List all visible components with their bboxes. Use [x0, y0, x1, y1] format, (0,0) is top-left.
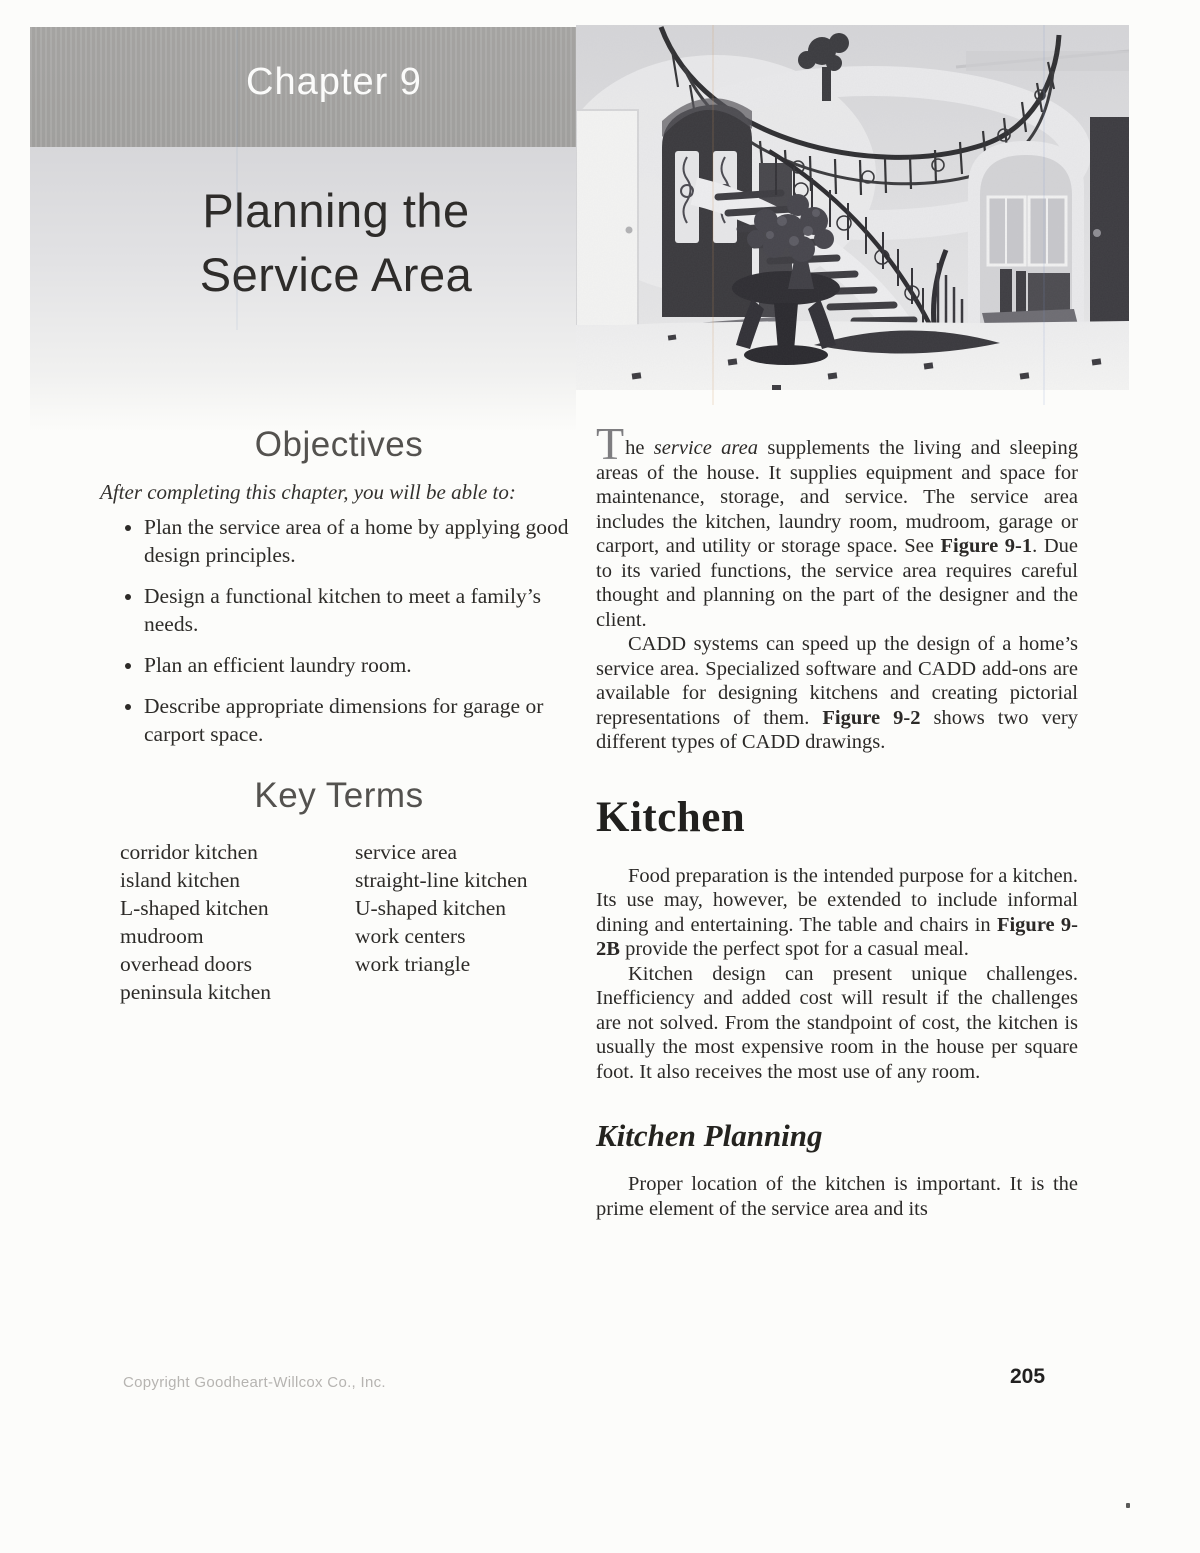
key-terms-column-1: corridor kitchen island kitchen L-shaped…	[120, 838, 355, 1006]
textbook-page: Chapter 9 Planning the Service Area	[0, 0, 1200, 1553]
chapter-title-line1: Planning the	[202, 184, 469, 237]
kitchen-p1-text: provide the perfect spot for a casual me…	[620, 938, 969, 960]
objective-item: Design a functional kitchen to meet a fa…	[144, 582, 578, 638]
objectives-heading: Objectives	[100, 425, 578, 465]
objectives-intro: After completing this chapter, you will …	[100, 479, 578, 505]
key-term: service area	[355, 838, 528, 866]
key-term: U-shaped kitchen	[355, 894, 528, 922]
chapter-title: Planning the Service Area	[30, 179, 576, 307]
key-term: work centers	[355, 922, 528, 950]
chapter-title-panel: Planning the Service Area	[30, 147, 576, 433]
chapter-label: Chapter 9	[30, 61, 576, 104]
intro-p1-text: he	[625, 437, 654, 459]
key-term: overhead doors	[120, 950, 355, 978]
objective-item: Describe appropriate dimensions for gara…	[144, 692, 578, 748]
intro-paragraph-1: The service area supplements the living …	[596, 436, 1078, 632]
footer-page-number: 205	[1010, 1365, 1045, 1389]
kitchen-paragraph-2: Kitchen design can present unique challe…	[596, 962, 1078, 1085]
service-area-term: service area	[654, 437, 758, 459]
kitchen-section-heading: Kitchen	[596, 793, 1078, 842]
key-term: peninsula kitchen	[120, 978, 355, 1006]
key-term: corridor kitchen	[120, 838, 355, 866]
kitchen-planning-heading: Kitchen Planning	[596, 1118, 1078, 1154]
key-terms-list: corridor kitchen island kitchen L-shaped…	[100, 838, 578, 1006]
key-term: straight-line kitchen	[355, 866, 528, 894]
footer-copyright: Copyright Goodheart-Willcox Co., Inc.	[123, 1374, 386, 1391]
figure-9-2-reference: Figure 9-2	[822, 707, 920, 729]
key-term: L-shaped kitchen	[120, 894, 355, 922]
chapter-header-band: Chapter 9	[30, 27, 576, 147]
intro-paragraph-2: CADD systems can speed up the design of …	[596, 632, 1078, 755]
key-term: mudroom	[120, 922, 355, 950]
scan-speck	[1126, 1503, 1130, 1508]
kitchen-planning-paragraph-1: Proper location of the kitchen is import…	[596, 1172, 1078, 1221]
key-terms-column-2: service area straight-line kitchen U-sha…	[355, 838, 528, 1006]
objective-item: Plan the service area of a home by apply…	[144, 513, 578, 569]
objectives-list: Plan the service area of a home by apply…	[100, 513, 578, 748]
key-term: work triangle	[355, 950, 528, 978]
kitchen-paragraph-1: Food preparation is the intended purpose…	[596, 864, 1078, 962]
key-terms-heading: Key Terms	[100, 776, 578, 816]
left-column: Objectives After completing this chapter…	[100, 425, 578, 1006]
objective-item: Plan an efficient laundry room.	[144, 651, 578, 679]
key-term: island kitchen	[120, 866, 355, 894]
right-column: The service area supplements the living …	[596, 436, 1078, 1221]
chapter-title-line2: Service Area	[200, 248, 472, 301]
foyer-spiral-staircase-photo	[576, 25, 1129, 390]
dropcap-T: T	[596, 418, 624, 469]
figure-9-1-reference: Figure 9-1	[940, 535, 1032, 557]
